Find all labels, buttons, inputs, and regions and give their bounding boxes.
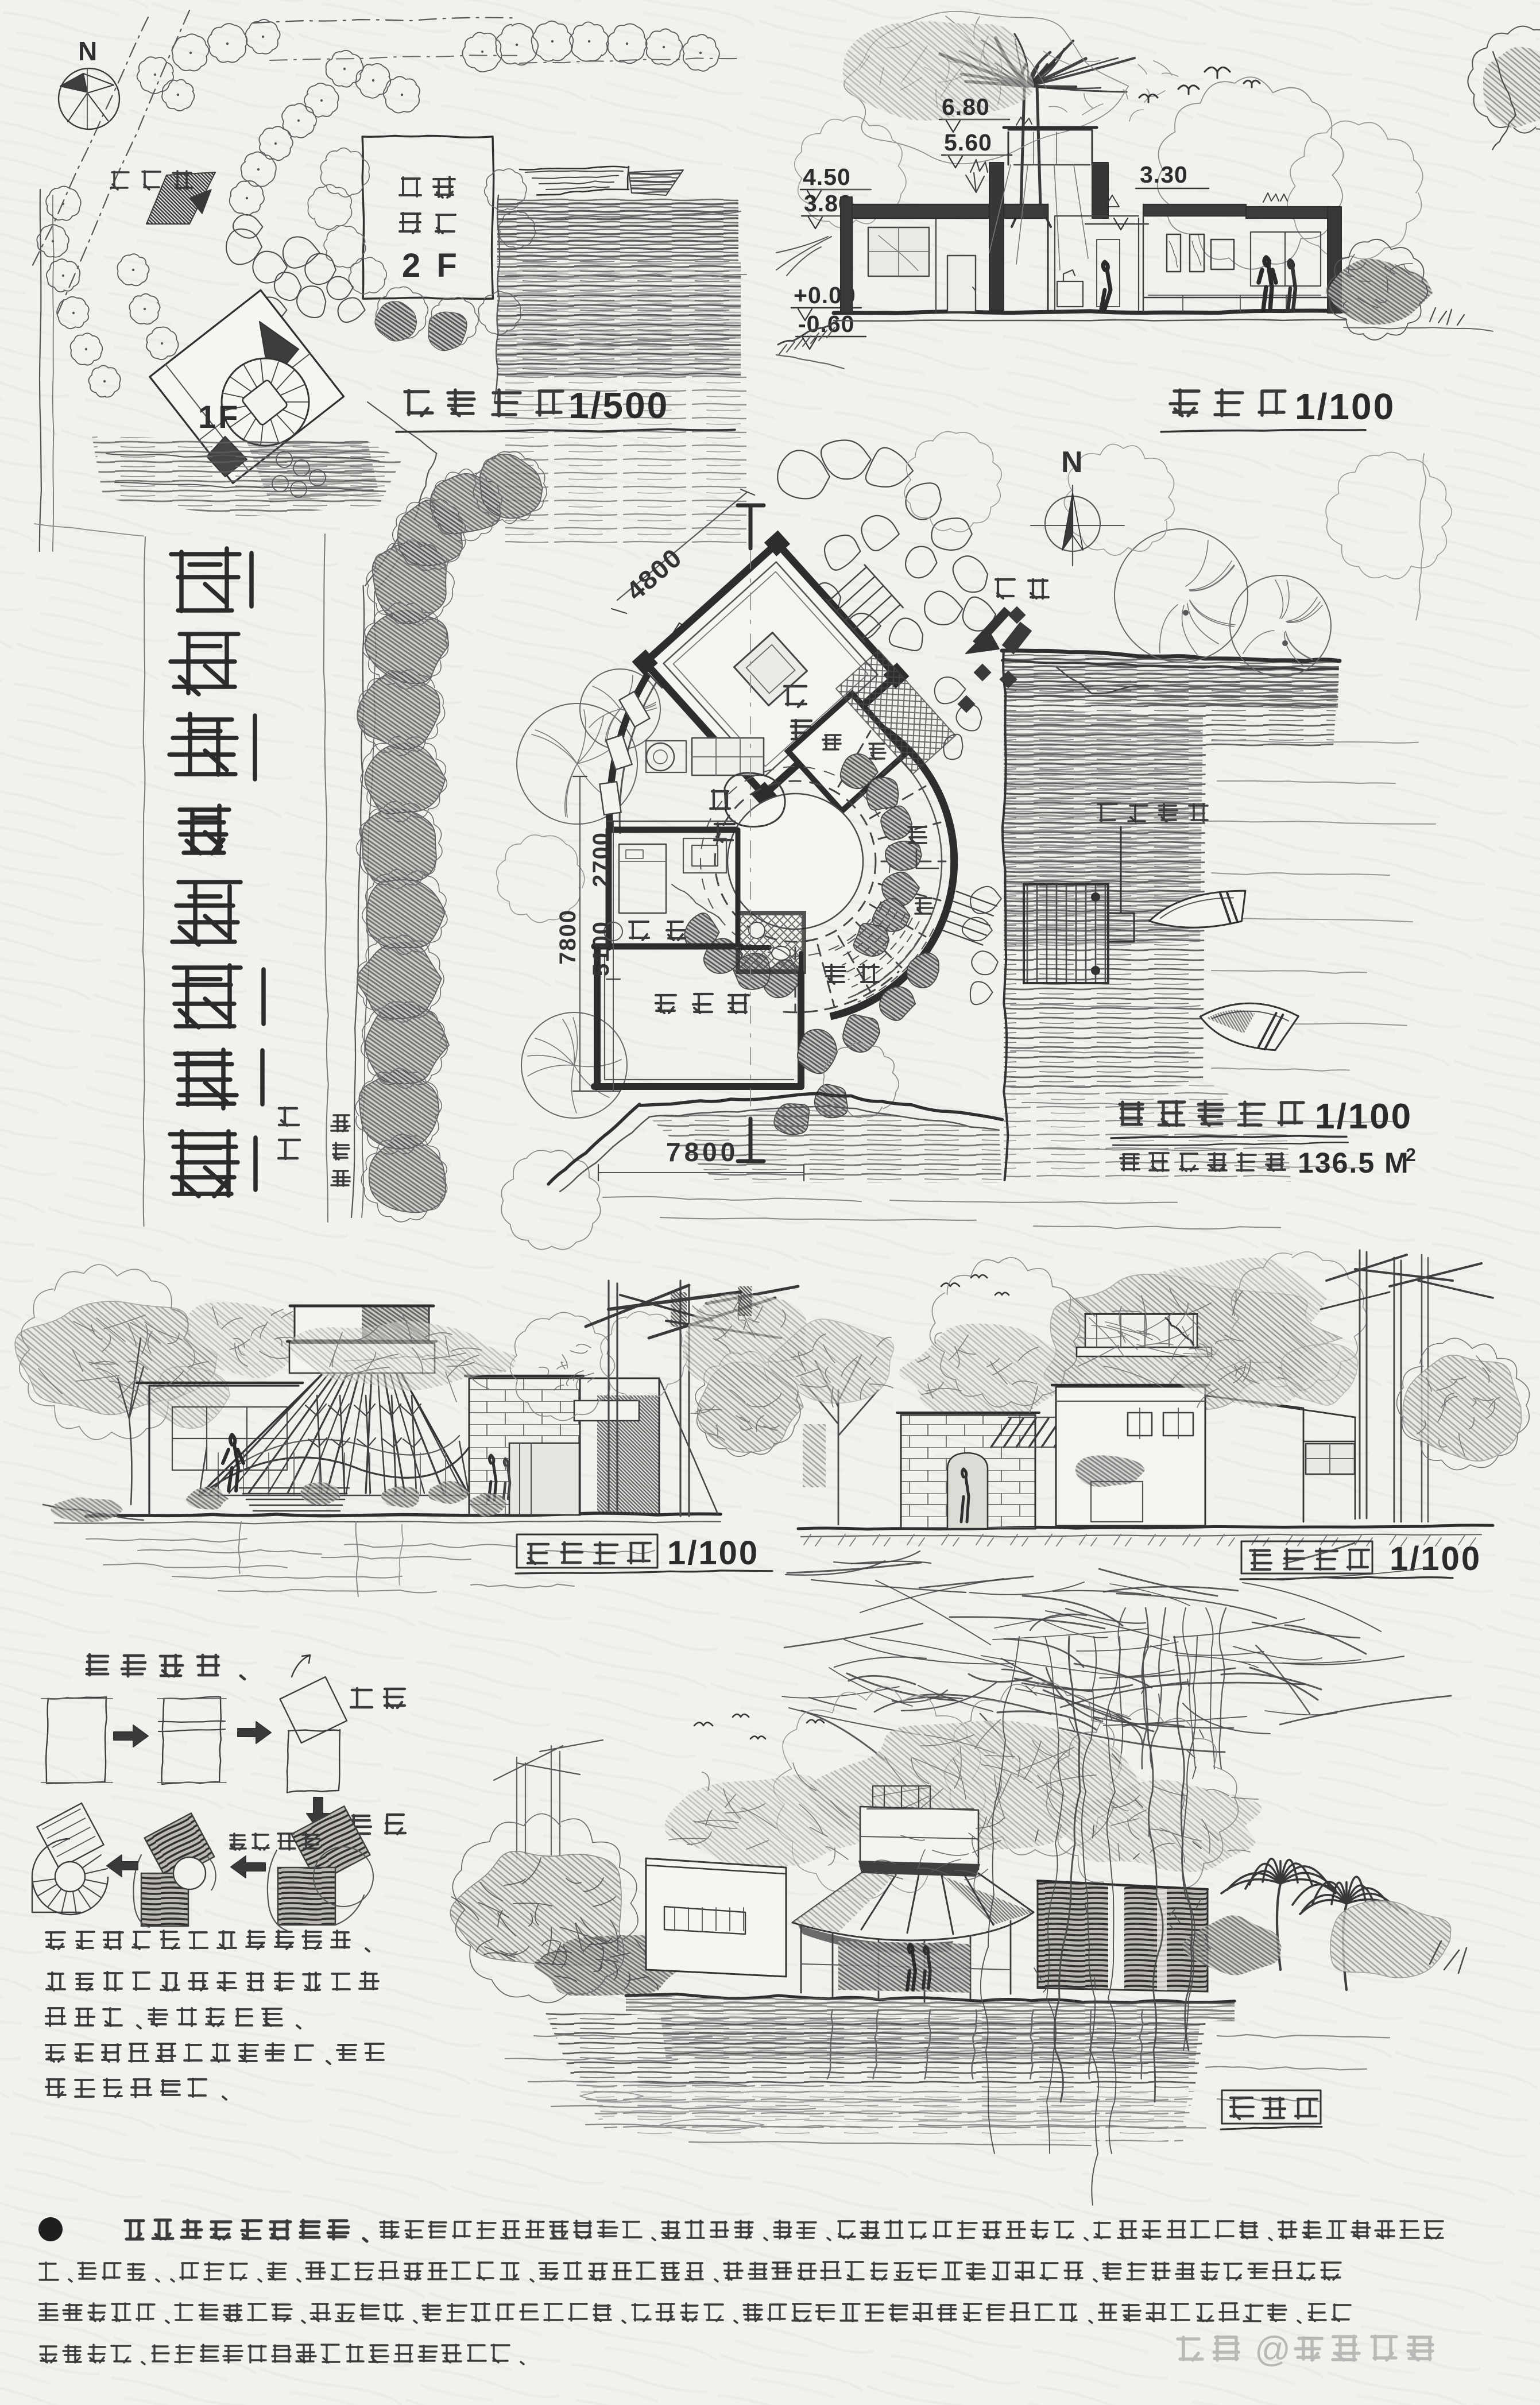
svg-text:5.60: 5.60 [944,129,992,156]
svg-text:N: N [78,36,97,66]
svg-text:1F: 1F [198,399,240,435]
svg-text:6.80: 6.80 [942,94,990,120]
svg-text:1/100: 1/100 [1390,1540,1481,1577]
svg-text:136.5 M: 136.5 M [1298,1147,1410,1179]
svg-text:3.30: 3.30 [1140,161,1188,188]
svg-text:1/100: 1/100 [1315,1097,1413,1136]
svg-text:4.50: 4.50 [803,164,851,190]
svg-text:2700: 2700 [589,832,614,887]
svg-text:2: 2 [1406,1144,1416,1165]
svg-text:1/100: 1/100 [667,1534,759,1572]
svg-text:1/500: 1/500 [568,385,669,426]
svg-text:@: @ [1255,2330,1291,2369]
svg-text:7800: 7800 [555,909,581,965]
svg-text:5100: 5100 [589,921,614,976]
svg-text:2 F: 2 F [402,247,461,284]
svg-text:7800: 7800 [666,1137,738,1167]
svg-text:1/100: 1/100 [1295,386,1395,427]
svg-text:N: N [1061,446,1083,479]
